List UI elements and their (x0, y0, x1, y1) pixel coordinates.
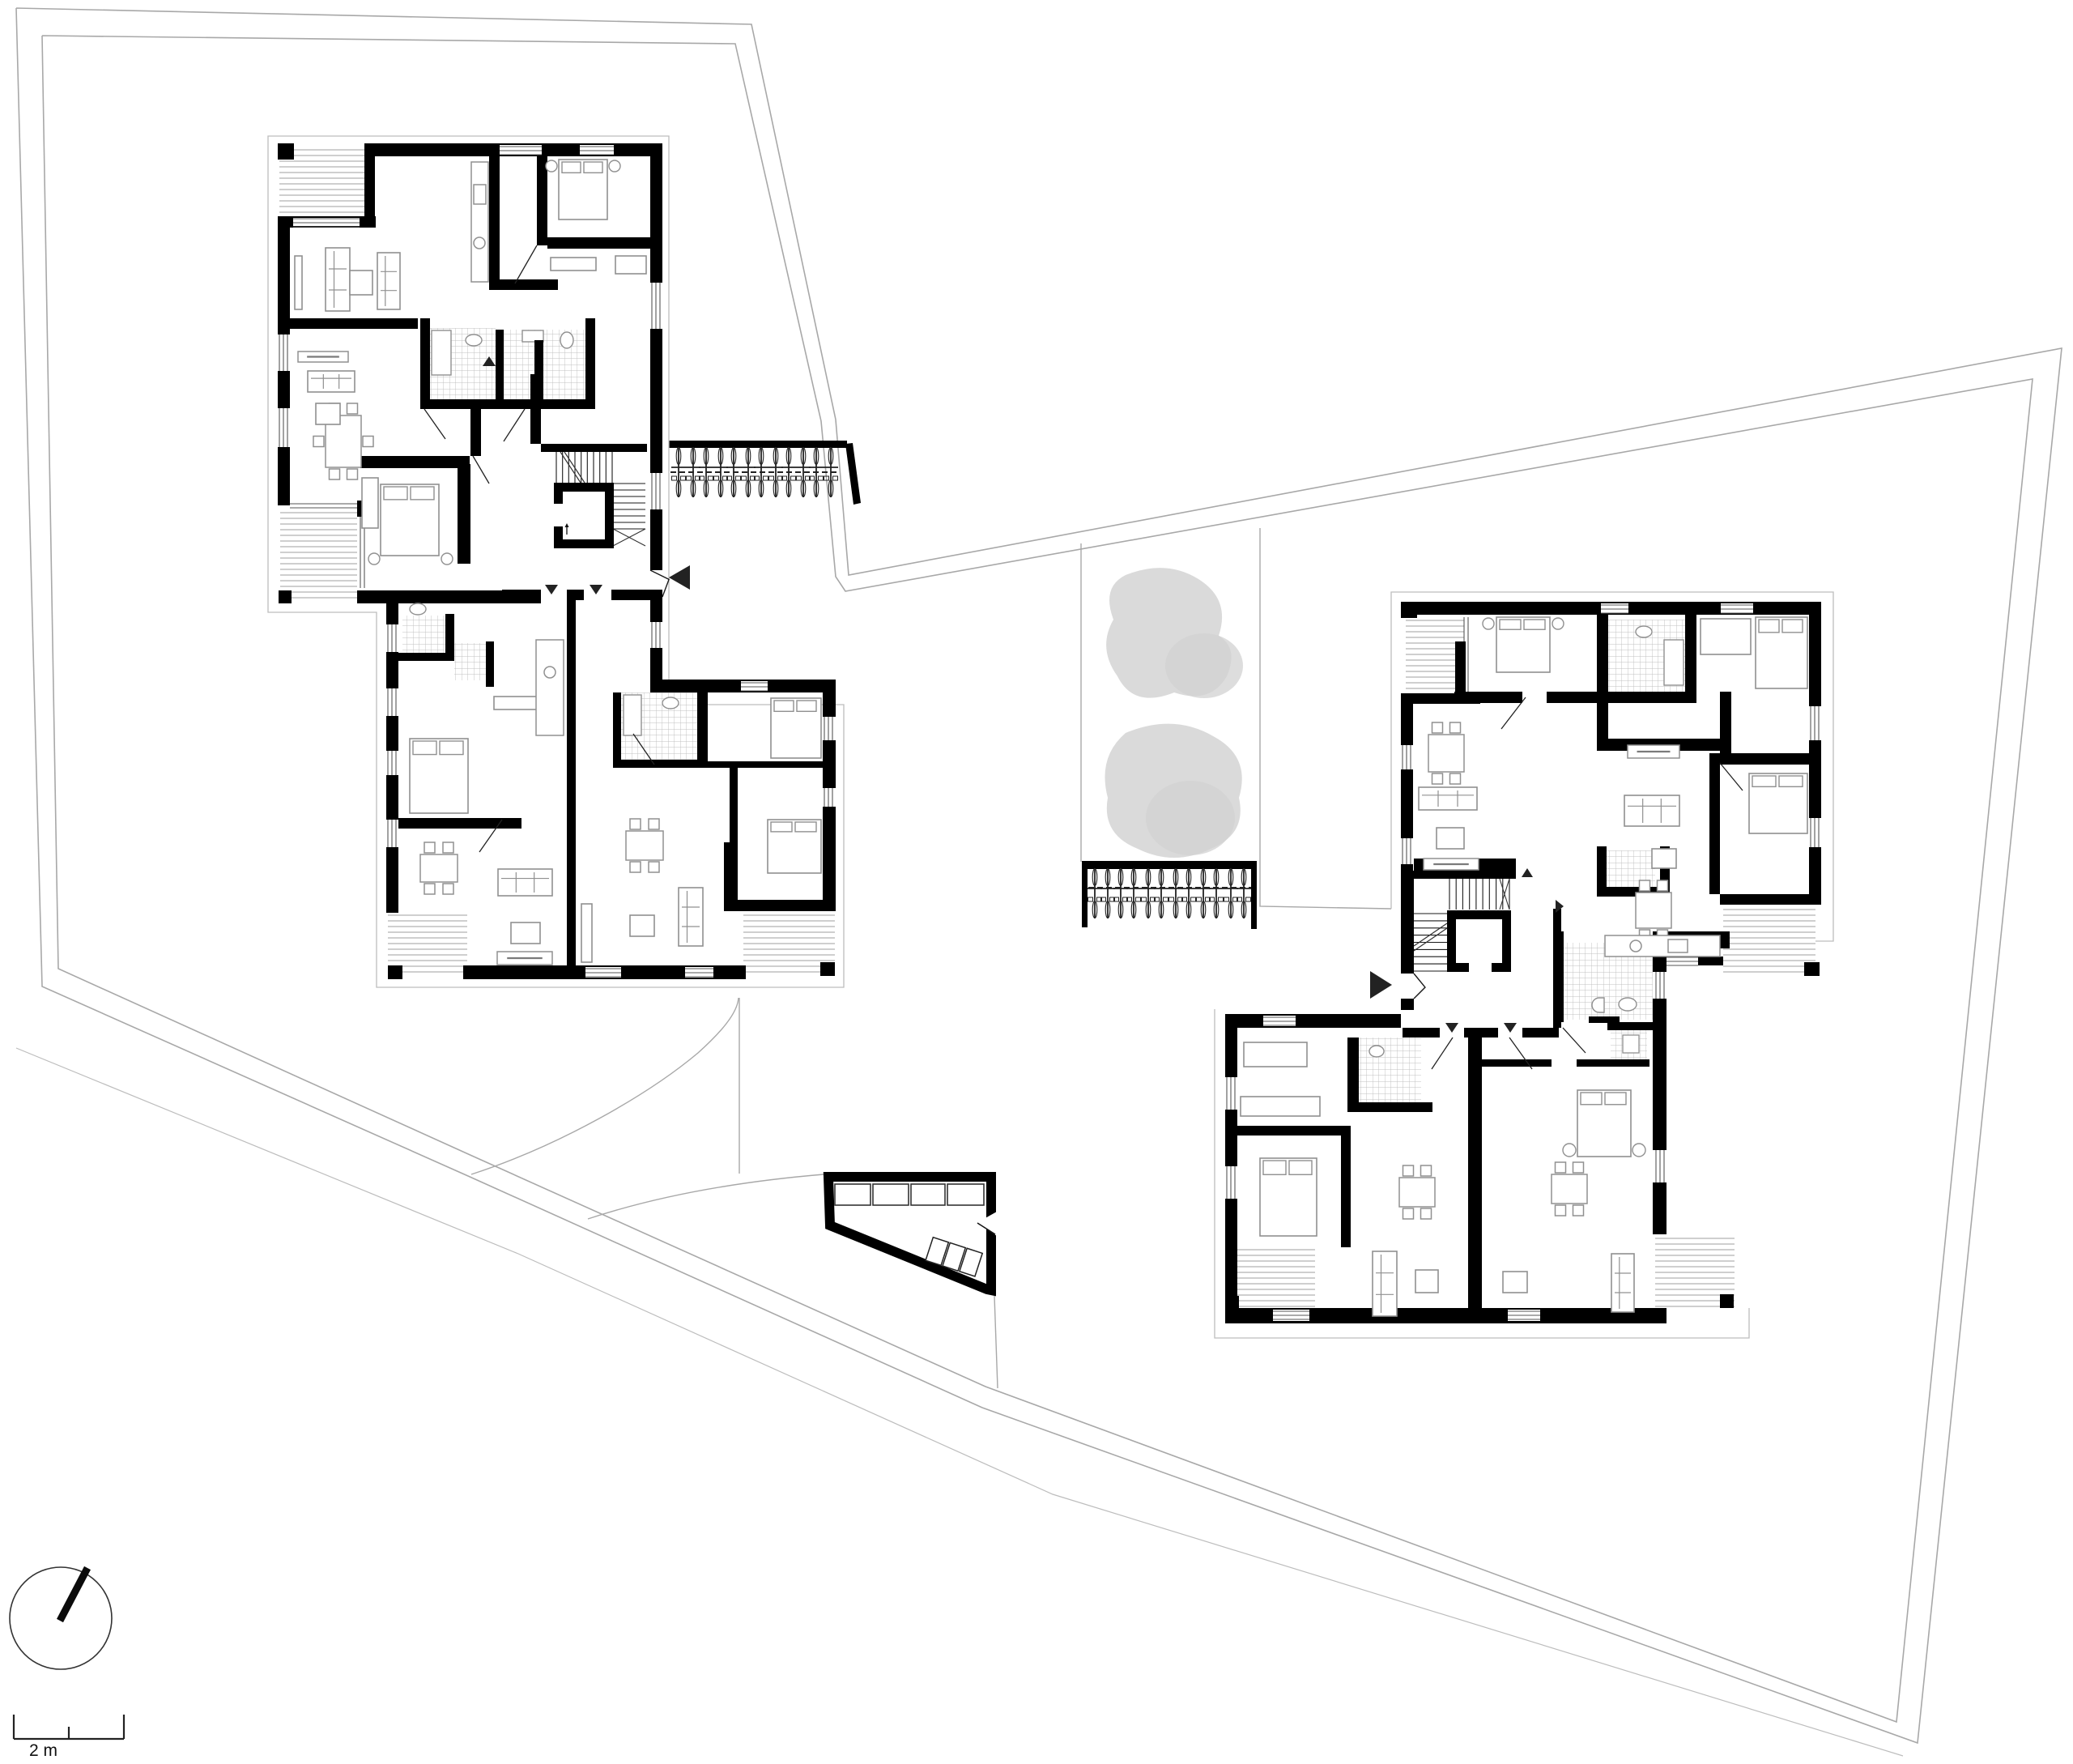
svg-text:2 m: 2 m (29, 1741, 57, 1760)
